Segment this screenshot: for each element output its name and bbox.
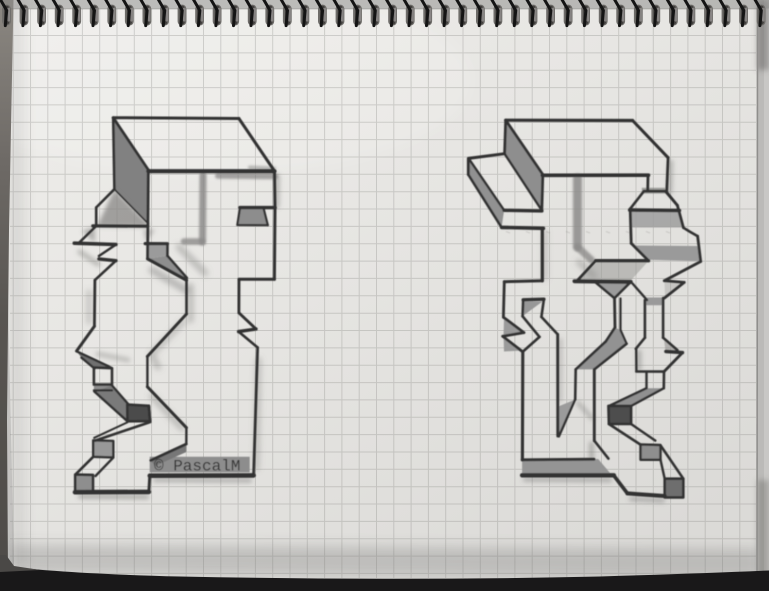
svg-text:© PascalM: © PascalM bbox=[154, 457, 240, 475]
